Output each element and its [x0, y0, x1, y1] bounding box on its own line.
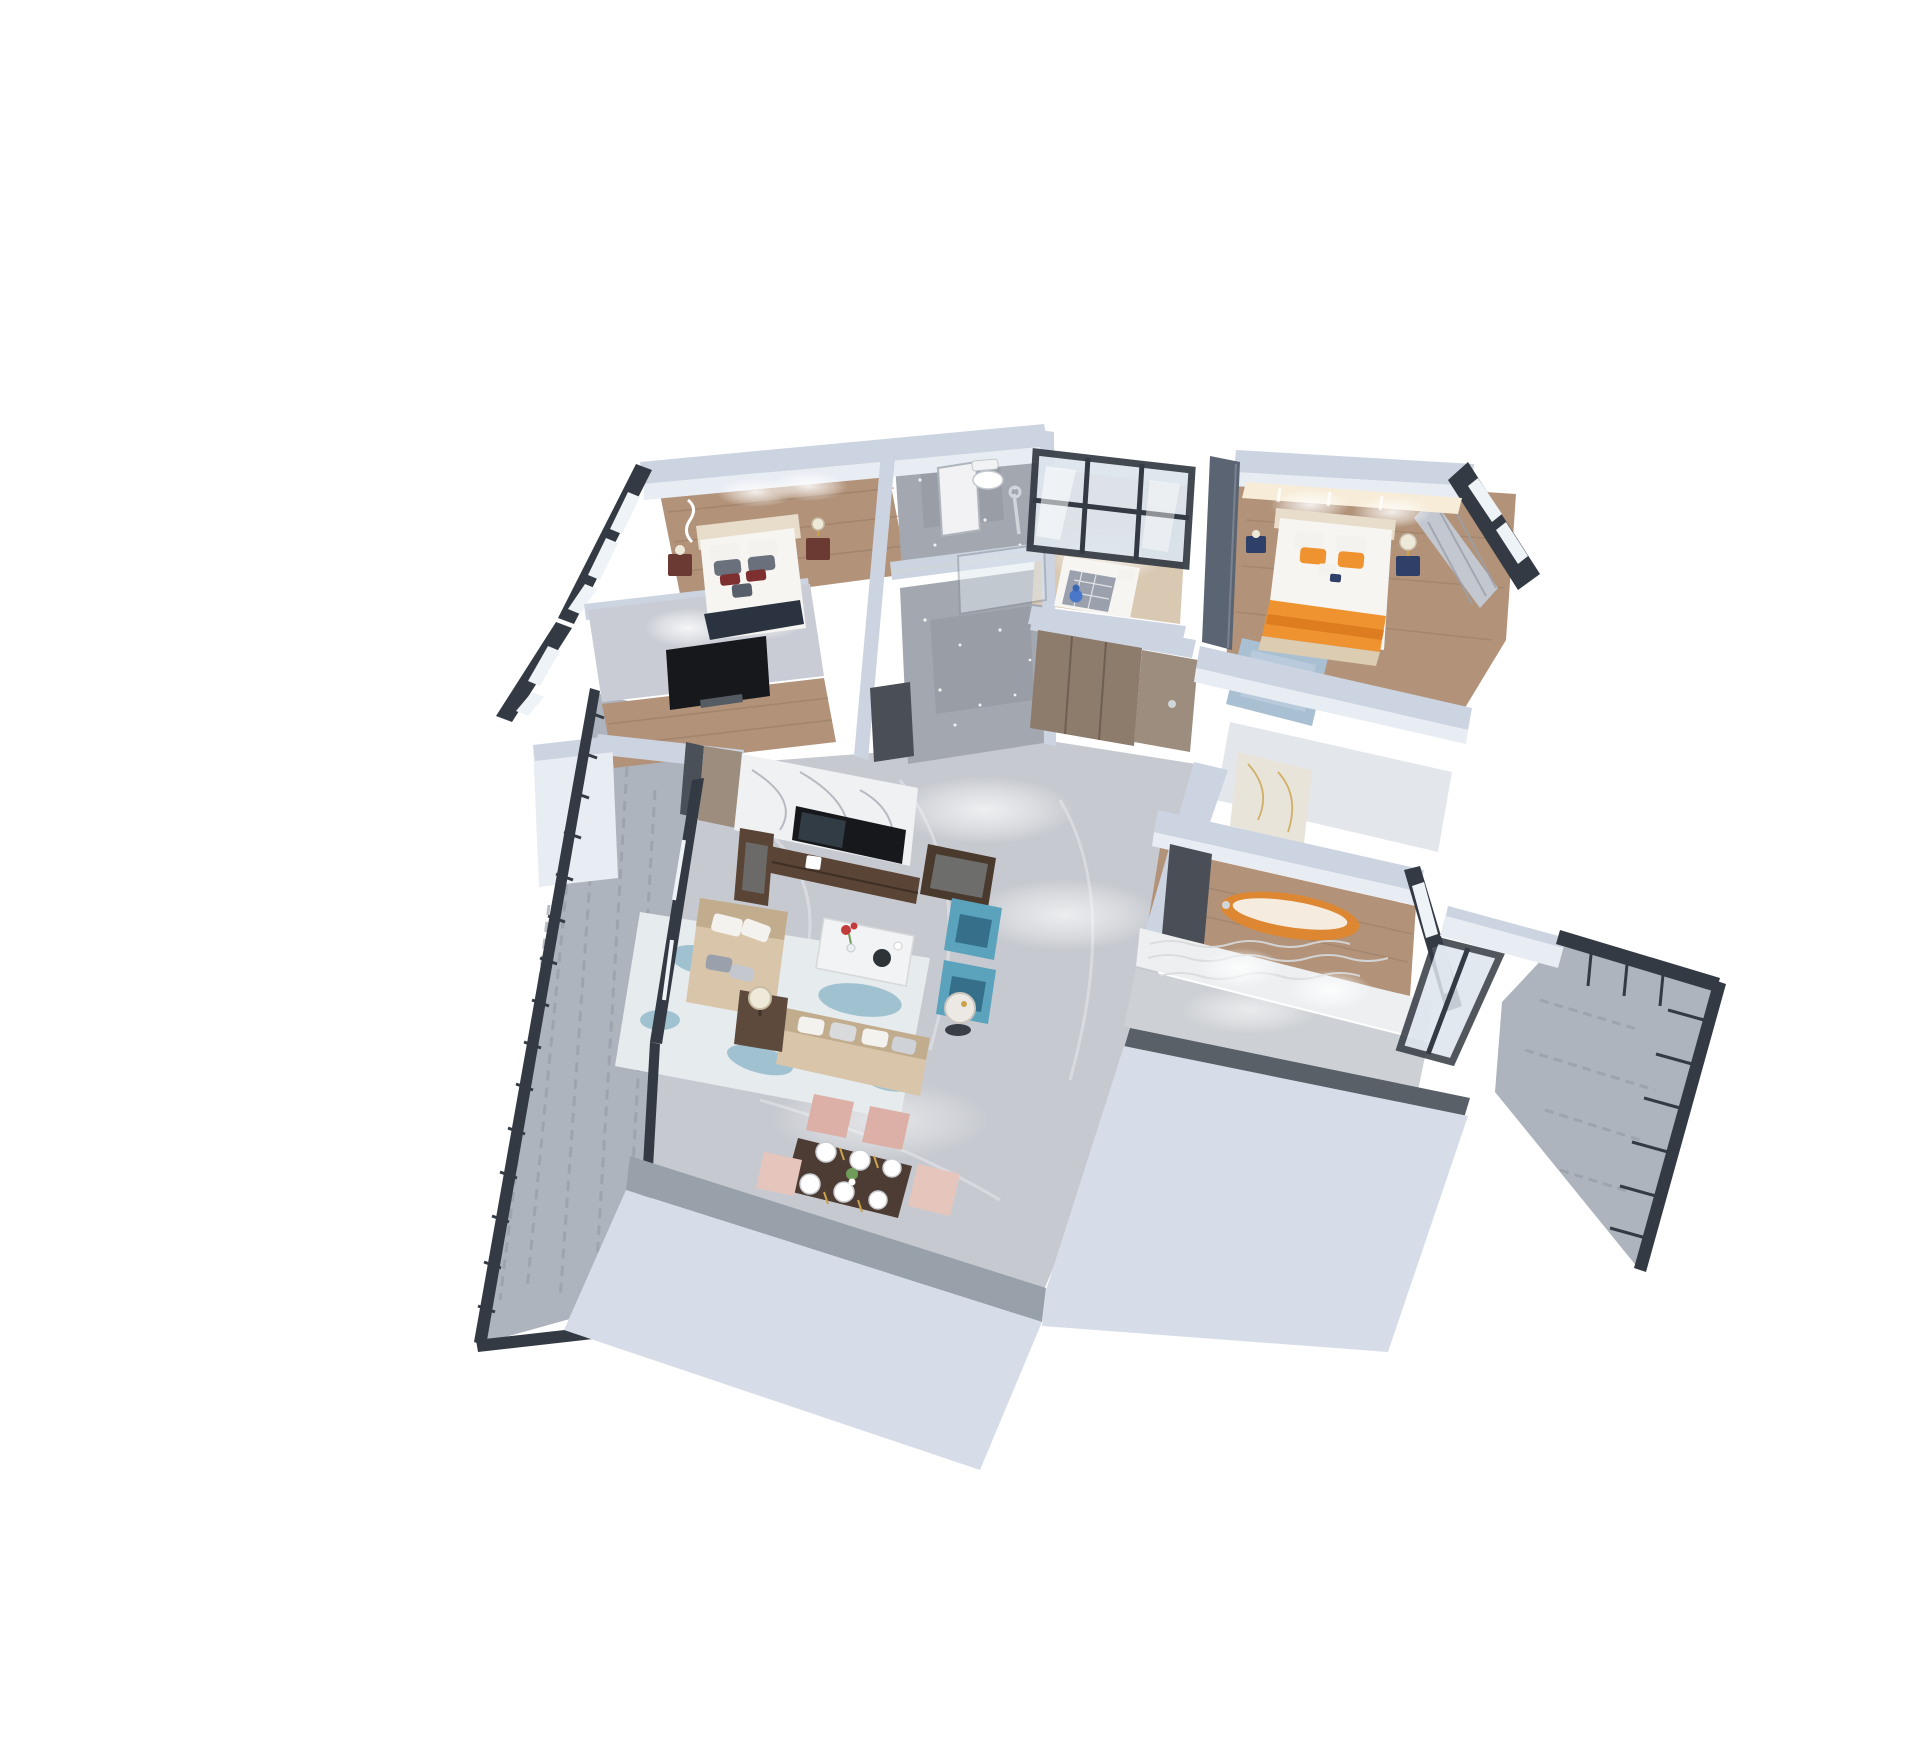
lamp: [1252, 530, 1260, 538]
dark-floor-mat: [1162, 844, 1212, 944]
maroon-pillow: [720, 573, 741, 586]
media-west-window-wall: [496, 622, 572, 722]
pillow: [747, 538, 779, 558]
hall-door: [1134, 650, 1198, 752]
centerpiece-plant: [846, 1168, 858, 1180]
maroon-pillow: [746, 569, 767, 582]
toilet: [973, 471, 1003, 489]
taupe-panel: [698, 746, 742, 828]
toilet-tank: [972, 459, 999, 471]
bathroom-dark-mat: [870, 682, 914, 762]
side-table-base: [945, 1024, 971, 1036]
vase: [847, 944, 855, 952]
floor-light-glow: [895, 776, 1075, 844]
white-door-panel: [938, 462, 980, 536]
dining-chair: [756, 1152, 802, 1196]
lumbar-pillow: [731, 583, 752, 598]
blue-figurine-head: [1073, 585, 1080, 592]
nightstand: [668, 554, 692, 576]
blue-accent: [1330, 574, 1342, 583]
nightstand: [806, 538, 830, 560]
orange-pillow: [1337, 551, 1364, 569]
cabinet-glass: [742, 842, 768, 894]
armchair-cushion: [955, 914, 992, 948]
round-side-table: [945, 993, 975, 1023]
wardrobe-doors: [1030, 630, 1142, 746]
centerpiece-vase: [849, 1179, 856, 1186]
black-tray: [873, 949, 891, 967]
lamp: [812, 518, 824, 530]
cup: [894, 942, 902, 950]
nightstand-left: [1246, 536, 1266, 553]
white-decor-object: [805, 855, 822, 870]
orange-pillow: [1299, 547, 1326, 565]
floorplan-render: [0, 0, 1920, 1754]
dining-chair: [862, 1106, 910, 1150]
nightstand-right: [1396, 556, 1420, 576]
render-canvas: [0, 0, 1920, 1754]
lamp: [1400, 534, 1416, 550]
lamp: [675, 545, 685, 555]
tub-faucet: [1222, 901, 1230, 909]
door-handle: [1168, 700, 1176, 708]
table-lamp: [749, 987, 771, 1009]
red-flowers: [841, 925, 851, 935]
dining-chair: [806, 1094, 854, 1138]
